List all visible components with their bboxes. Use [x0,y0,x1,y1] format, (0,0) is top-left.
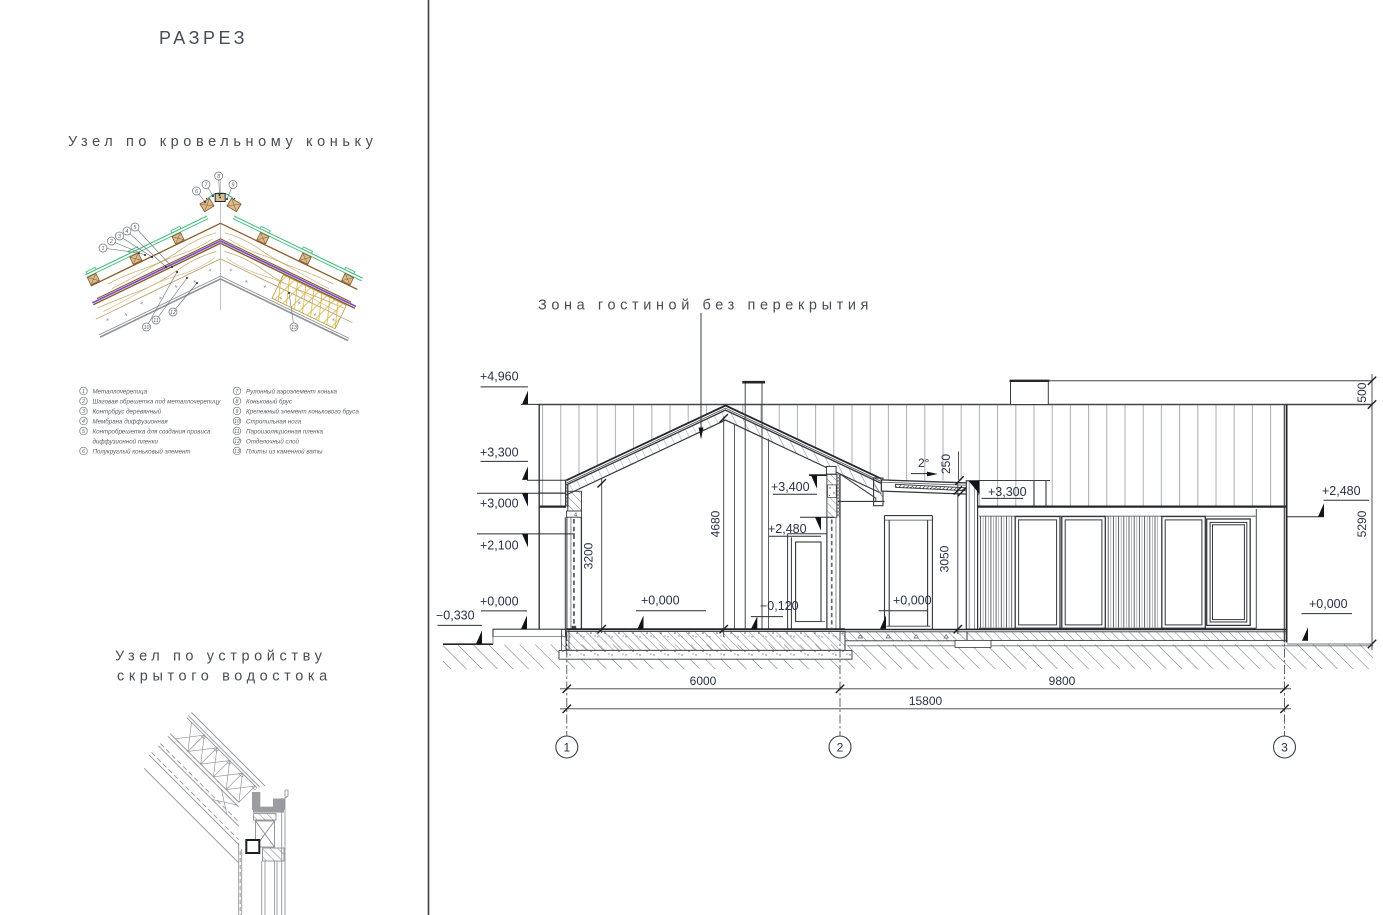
svg-text:3: 3 [118,234,121,240]
svg-text:2°: 2° [918,456,930,470]
svg-text:+4,960: +4,960 [480,370,519,384]
svg-text:Контробрешетка для создания пр: Контробрешетка для создания провиса [93,428,212,435]
svg-text:+2,100: +2,100 [480,539,519,553]
svg-text:Шаговая обрешетка под металлоч: Шаговая обрешетка под металлочерепицу [93,398,222,405]
svg-text:−0,120: −0,120 [760,599,799,613]
svg-text:12: 12 [234,439,240,445]
svg-text:Коньковый брус: Коньковый брус [246,398,293,405]
svg-text:−0,330: −0,330 [436,609,475,623]
svg-text:9: 9 [236,409,239,415]
svg-text:РАЗРЕЗ: РАЗРЕЗ [159,28,248,48]
svg-text:500: 500 [1355,382,1369,402]
svg-text:+3,300: +3,300 [480,446,519,460]
svg-text:+3,300: +3,300 [988,485,1027,499]
svg-text:Пароизоляционная пленка: Пароизоляционная пленка [246,428,324,435]
svg-text:4680: 4680 [709,510,723,537]
svg-text:Отделочный слой: Отделочный слой [246,438,300,445]
svg-text:8: 8 [217,174,220,180]
svg-text:6000: 6000 [690,674,717,688]
svg-text:3200: 3200 [582,542,596,569]
svg-text:9: 9 [232,182,235,188]
svg-text:+0,000: +0,000 [893,594,932,608]
svg-text:13: 13 [291,325,297,331]
svg-text:Металлочерепица: Металлочерепица [93,388,148,395]
svg-text:11: 11 [234,429,239,435]
svg-text:Мембрана диффузионная: Мембрана диффузионная [93,418,169,425]
svg-text:Контрбрус деревянный: Контрбрус деревянный [93,408,162,415]
svg-text:Полукруглый коньковый элемент: Полукруглый коньковый элемент [93,448,191,455]
svg-text:3050: 3050 [938,545,952,572]
svg-text:Зона гостиной без перекрытия: Зона гостиной без перекрытия [538,298,873,314]
svg-text:+0,000: +0,000 [1309,597,1348,611]
svg-text:9800: 9800 [1049,674,1076,688]
svg-text:5: 5 [82,429,85,435]
svg-text:Крепежный элемент конькового б: Крепежный элемент конькового бруса [246,408,359,415]
svg-text:10: 10 [144,325,150,331]
svg-text:2: 2 [81,399,85,405]
svg-text:4: 4 [574,513,577,519]
svg-text:Плиты из каменной ваты: Плиты из каменной ваты [246,448,323,455]
svg-text:15800: 15800 [909,694,943,708]
svg-text:5: 5 [134,225,137,231]
svg-text:1: 1 [563,741,570,755]
svg-text:4: 4 [126,229,129,235]
svg-text:12: 12 [170,310,176,316]
svg-text:6: 6 [82,449,85,455]
svg-text:6: 6 [195,189,198,195]
svg-text:2: 2 [837,741,844,755]
svg-text:Узел по устройству: Узел по устройству [115,649,326,665]
svg-text:+0,000: +0,000 [641,594,680,608]
svg-text:скрытого водостока: скрытого водостока [117,669,332,685]
svg-text:3: 3 [1281,741,1288,755]
svg-text:5290: 5290 [1355,510,1369,537]
svg-text:8: 8 [236,399,239,405]
svg-text:11: 11 [153,318,158,324]
svg-text:3: 3 [82,409,85,415]
svg-text:Рулонный аэроэлемент конька: Рулонный аэроэлемент конька [246,388,338,395]
svg-text:диффузионной пленки: диффузионной пленки [93,438,159,445]
svg-text:+2,480: +2,480 [1322,484,1361,498]
svg-text:10: 10 [234,419,240,425]
svg-text:1: 1 [82,389,85,395]
svg-text:+3,000: +3,000 [480,497,519,511]
svg-text:Узел по кровельному коньку: Узел по кровельному коньку [68,134,377,150]
svg-text:13: 13 [234,449,240,455]
svg-text:+0,000: +0,000 [480,595,519,609]
svg-text:4: 4 [82,419,85,425]
svg-text:1: 1 [102,246,105,252]
svg-text:250: 250 [939,454,953,474]
svg-text:+3,400: +3,400 [771,480,810,494]
svg-text:Стропильная нога: Стропильная нога [246,418,302,425]
svg-text:2: 2 [109,239,113,245]
svg-text:+2,480: +2,480 [768,522,807,536]
